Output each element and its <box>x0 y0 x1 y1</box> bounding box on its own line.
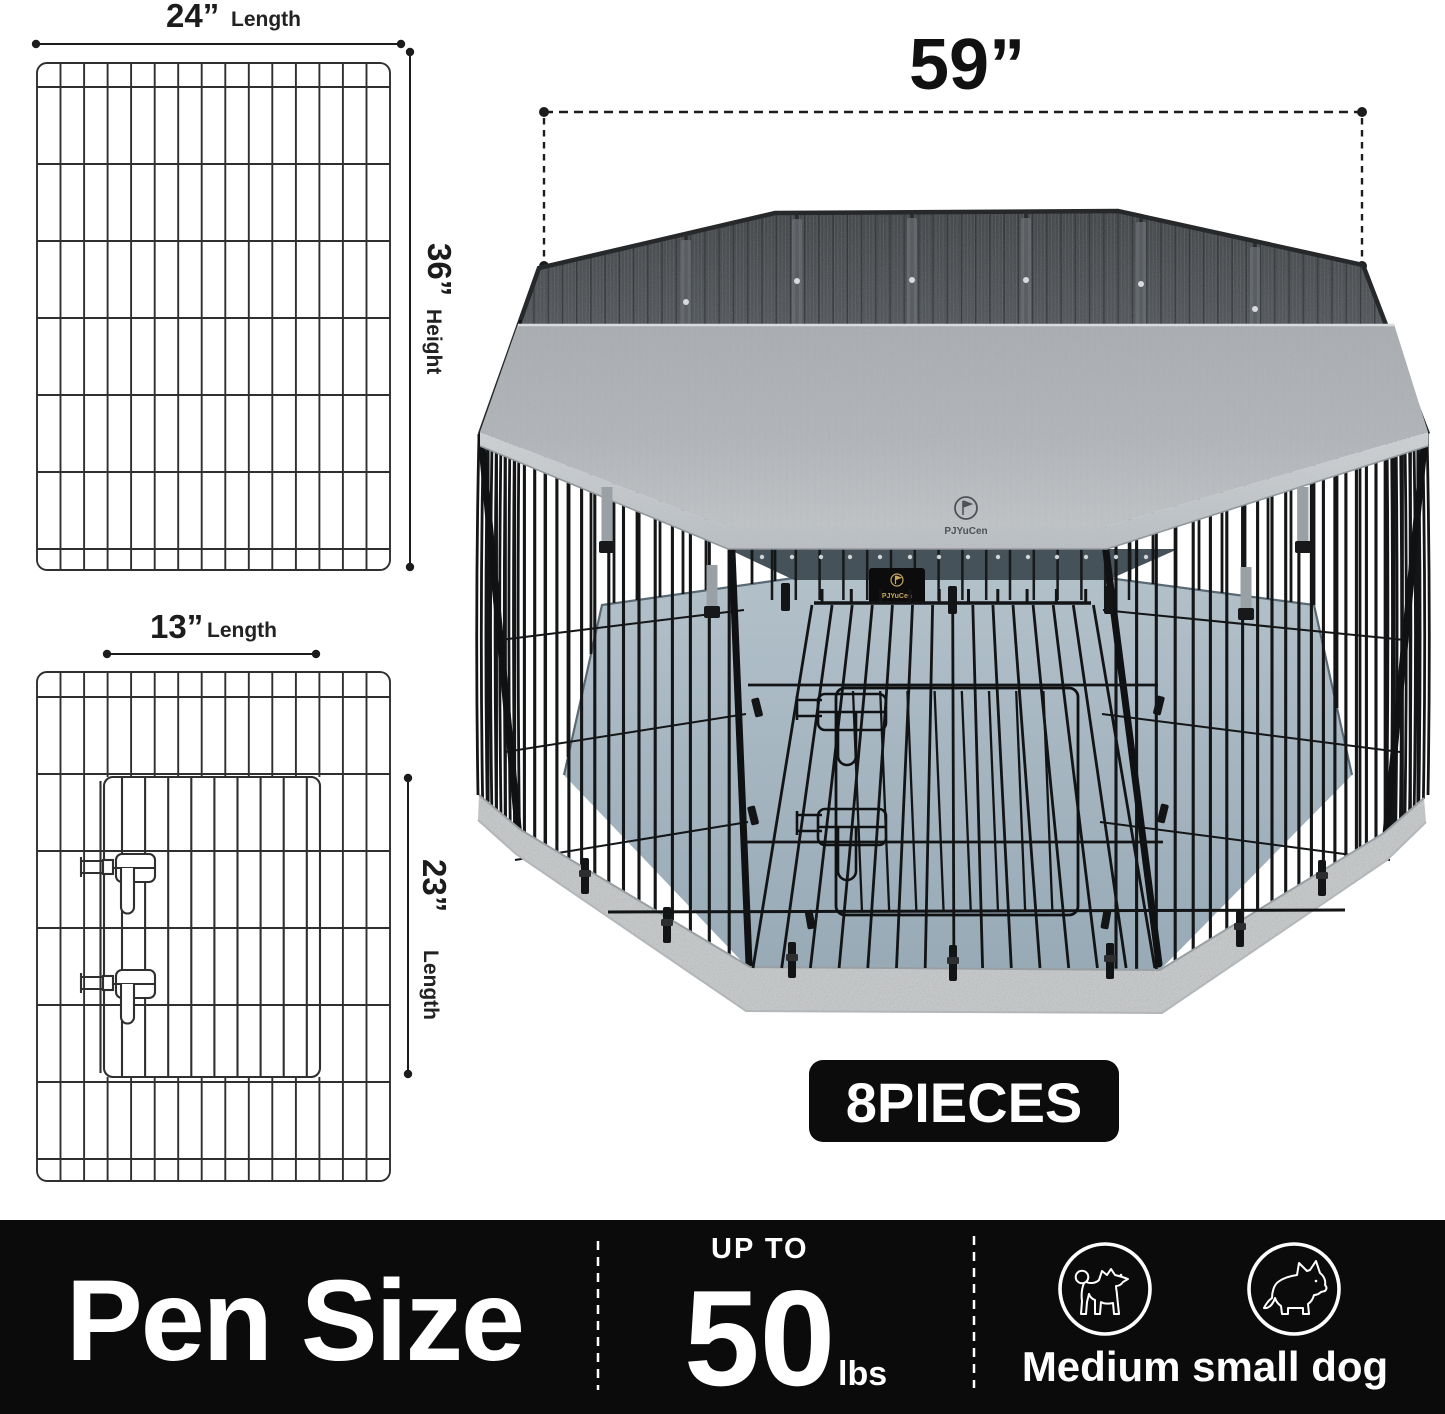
svg-text:UP TO: UP TO <box>711 1233 809 1265</box>
svg-text:50: 50 <box>684 1262 835 1414</box>
svg-text:Medium small dog: Medium small dog <box>1022 1343 1388 1390</box>
svg-text:Length: Length <box>419 950 442 1020</box>
svg-text:lbs: lbs <box>838 1355 887 1393</box>
svg-text:59”: 59” <box>909 25 1025 105</box>
svg-text:Length: Length <box>207 619 277 642</box>
svg-text:36”: 36” <box>421 243 458 296</box>
svg-text:8PIECES: 8PIECES <box>846 1071 1083 1134</box>
svg-text:Pen Size: Pen Size <box>66 1257 523 1385</box>
svg-text:PJYuCen: PJYuCen <box>882 593 912 600</box>
svg-text:13”: 13” <box>150 608 203 645</box>
svg-text:23”: 23” <box>416 859 453 912</box>
svg-text:Length: Length <box>231 8 301 31</box>
svg-text:24”: 24” <box>166 0 219 34</box>
svg-text:PJYuCen: PJYuCen <box>944 526 987 537</box>
svg-text:Height: Height <box>422 309 445 374</box>
